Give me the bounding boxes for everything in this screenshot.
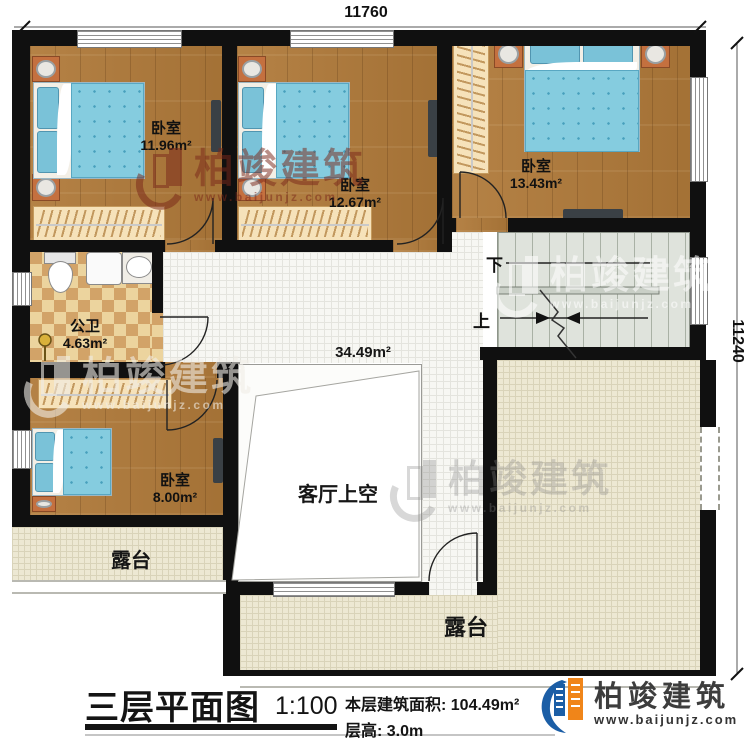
bedroom4-label: 卧室 8.00m² — [153, 472, 197, 505]
room-area: 12.67m² — [329, 194, 381, 210]
title-underline-thin — [85, 734, 555, 736]
room-name: 卧室 — [140, 120, 191, 137]
brand-url: www.baijunjz.com — [594, 712, 738, 727]
plan-linework-overlay — [0, 0, 750, 743]
hall-area-label: 34.49m² — [335, 344, 391, 361]
living-void-outline — [232, 365, 422, 582]
bathroom-label: 公卫 4.63m² — [63, 318, 107, 351]
bedroom3-label: 卧室 13.43m² — [510, 158, 562, 191]
room-name: 公卫 — [63, 318, 107, 335]
floor-area-text: 本层建筑面积: 104.49m² — [345, 691, 519, 715]
terrace-left-label: 露台 — [111, 544, 151, 573]
floor-plan-canvas: 卧室 11.96m² 卧室 12.67m² 卧室 13.43m² 公卫 4.63… — [0, 0, 750, 743]
room-name: 卧室 — [510, 158, 562, 175]
floor-height-text: 层高: 3.0m — [345, 717, 423, 741]
floor-drain — [39, 334, 51, 361]
room-area: 11.96m² — [140, 137, 191, 153]
room-area: 4.63m² — [63, 335, 107, 351]
title-underline — [85, 724, 337, 730]
dimension-top-label: 11760 — [338, 4, 394, 22]
plan-scale: 1:100 — [275, 692, 338, 721]
bedroom2-label: 卧室 12.67m² — [329, 177, 381, 210]
terrace-main-label: 露台 — [444, 610, 488, 642]
brand-logo-icon — [536, 676, 588, 734]
bedroom1-label: 卧室 11.96m² — [140, 120, 191, 153]
stairs-down-label: 下 — [486, 251, 503, 276]
living-void-label: 客厅上空 — [298, 478, 378, 507]
room-name: 卧室 — [153, 472, 197, 489]
stairs-up-label: 上 — [473, 307, 490, 332]
brand-name: 柏竣建筑 — [594, 683, 738, 712]
room-name: 卧室 — [329, 177, 381, 194]
dimension-right-label: 11240 — [728, 311, 746, 371]
room-area: 13.43m² — [510, 175, 562, 191]
plan-title: 三层平面图 — [85, 680, 260, 729]
stairs-markings — [497, 263, 659, 358]
brand-footer: 柏竣建筑 www.baijunjz.com — [536, 676, 738, 734]
room-area: 8.00m² — [153, 489, 197, 505]
